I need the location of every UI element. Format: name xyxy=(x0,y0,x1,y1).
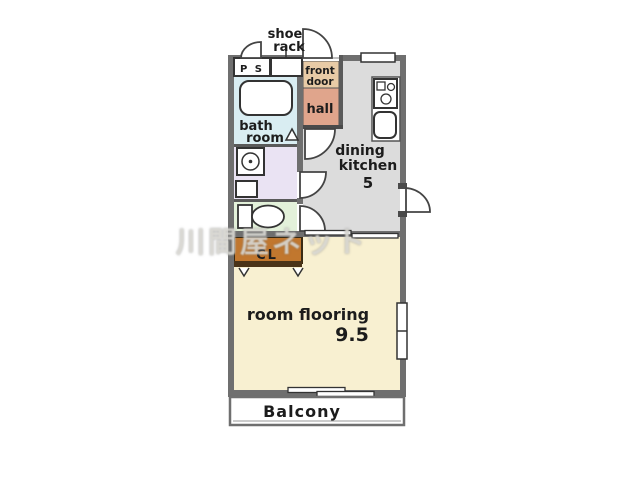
closet-label: CL xyxy=(256,248,278,263)
dk-sliding-door-left xyxy=(305,231,351,236)
ps-door-swing xyxy=(241,42,261,58)
room-flooring-label: room flooring xyxy=(247,305,369,324)
shoe-rack-box xyxy=(271,58,302,76)
bath-room-label-line2: room xyxy=(246,131,284,146)
washbasin-drain-icon xyxy=(249,160,253,164)
side-door-swing xyxy=(406,188,430,212)
kitchen-window xyxy=(361,53,395,62)
shoe-rack-label-line2: rack xyxy=(273,40,305,55)
dining-kitchen-label-line2: kitchen xyxy=(339,158,398,174)
floor-plan: shoe rack P S front door hall bath room … xyxy=(0,0,640,480)
wall-hall-right xyxy=(339,55,343,129)
dk-sliding-door-right xyxy=(352,234,398,239)
dining-kitchen-size-label: 5 xyxy=(363,174,373,192)
laundry-pan-icon xyxy=(236,181,257,197)
dining-kitchen-label-line1: dining xyxy=(335,143,385,159)
toilet-tank-icon xyxy=(238,205,252,228)
wall-wash-toilet-divider xyxy=(234,199,297,202)
room-flooring-size-label: 9.5 xyxy=(335,324,369,346)
bathtub-icon xyxy=(240,81,292,115)
toilet-bowl-icon xyxy=(252,206,284,228)
wall-left xyxy=(228,55,234,397)
balcony-label: Balcony xyxy=(263,402,341,421)
floor-plan-drawing: shoe rack P S front door hall bath room … xyxy=(0,0,640,480)
kitchen-sink-icon xyxy=(374,112,396,138)
front-door-swing xyxy=(303,29,332,58)
pipe-space-label: P S xyxy=(240,64,264,75)
front-door-label-line2: door xyxy=(306,76,334,88)
hall-label: hall xyxy=(307,102,334,117)
